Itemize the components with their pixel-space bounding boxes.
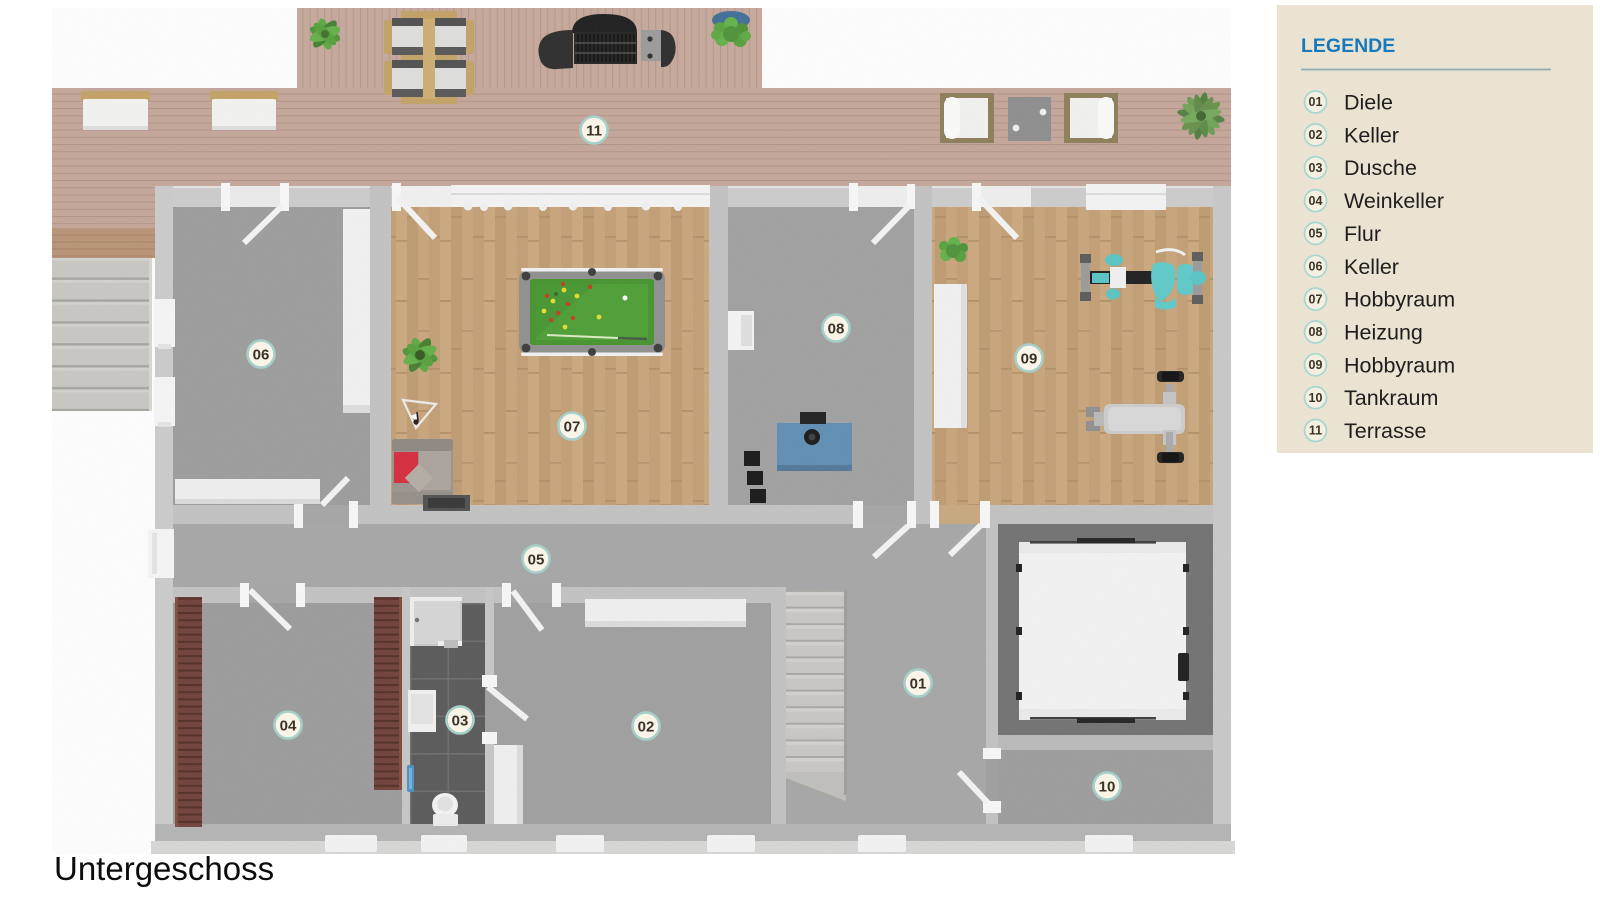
svg-text:Hobbyraum: Hobbyraum [1344, 353, 1455, 377]
svg-text:05: 05 [1309, 227, 1323, 241]
svg-text:Keller: Keller [1344, 123, 1399, 147]
svg-text:03: 03 [1309, 161, 1323, 175]
svg-text:Weinkeller: Weinkeller [1344, 189, 1444, 213]
svg-text:05: 05 [528, 552, 545, 569]
svg-text:11: 11 [1309, 424, 1322, 438]
svg-text:10: 10 [1309, 391, 1323, 405]
svg-text:Hobbyraum: Hobbyraum [1344, 288, 1455, 312]
svg-text:04: 04 [280, 718, 297, 735]
svg-text:Untergeschoss: Untergeschoss [54, 850, 274, 887]
svg-text:08: 08 [828, 321, 845, 338]
svg-text:03: 03 [452, 713, 469, 730]
svg-text:Heizung: Heizung [1344, 321, 1423, 345]
svg-text:07: 07 [1309, 292, 1323, 306]
svg-text:10: 10 [1099, 779, 1116, 796]
svg-text:02: 02 [1309, 128, 1323, 142]
svg-text:11: 11 [586, 123, 602, 140]
svg-text:02: 02 [638, 719, 655, 736]
svg-text:Flur: Flur [1344, 222, 1381, 246]
svg-text:06: 06 [253, 347, 270, 364]
svg-text:09: 09 [1021, 351, 1038, 368]
svg-text:06: 06 [1309, 260, 1323, 274]
svg-text:Terrasse: Terrasse [1344, 419, 1426, 443]
svg-text:01: 01 [910, 676, 927, 693]
svg-text:Dusche: Dusche [1344, 156, 1417, 180]
svg-text:LEGENDE: LEGENDE [1301, 35, 1395, 57]
svg-text:04: 04 [1309, 194, 1323, 208]
svg-text:08: 08 [1309, 325, 1323, 339]
svg-text:Diele: Diele [1344, 91, 1393, 115]
svg-text:09: 09 [1309, 358, 1323, 372]
svg-text:07: 07 [564, 419, 581, 436]
svg-text:Tankraum: Tankraum [1344, 386, 1438, 410]
svg-text:Keller: Keller [1344, 255, 1399, 279]
svg-text:01: 01 [1309, 95, 1323, 109]
